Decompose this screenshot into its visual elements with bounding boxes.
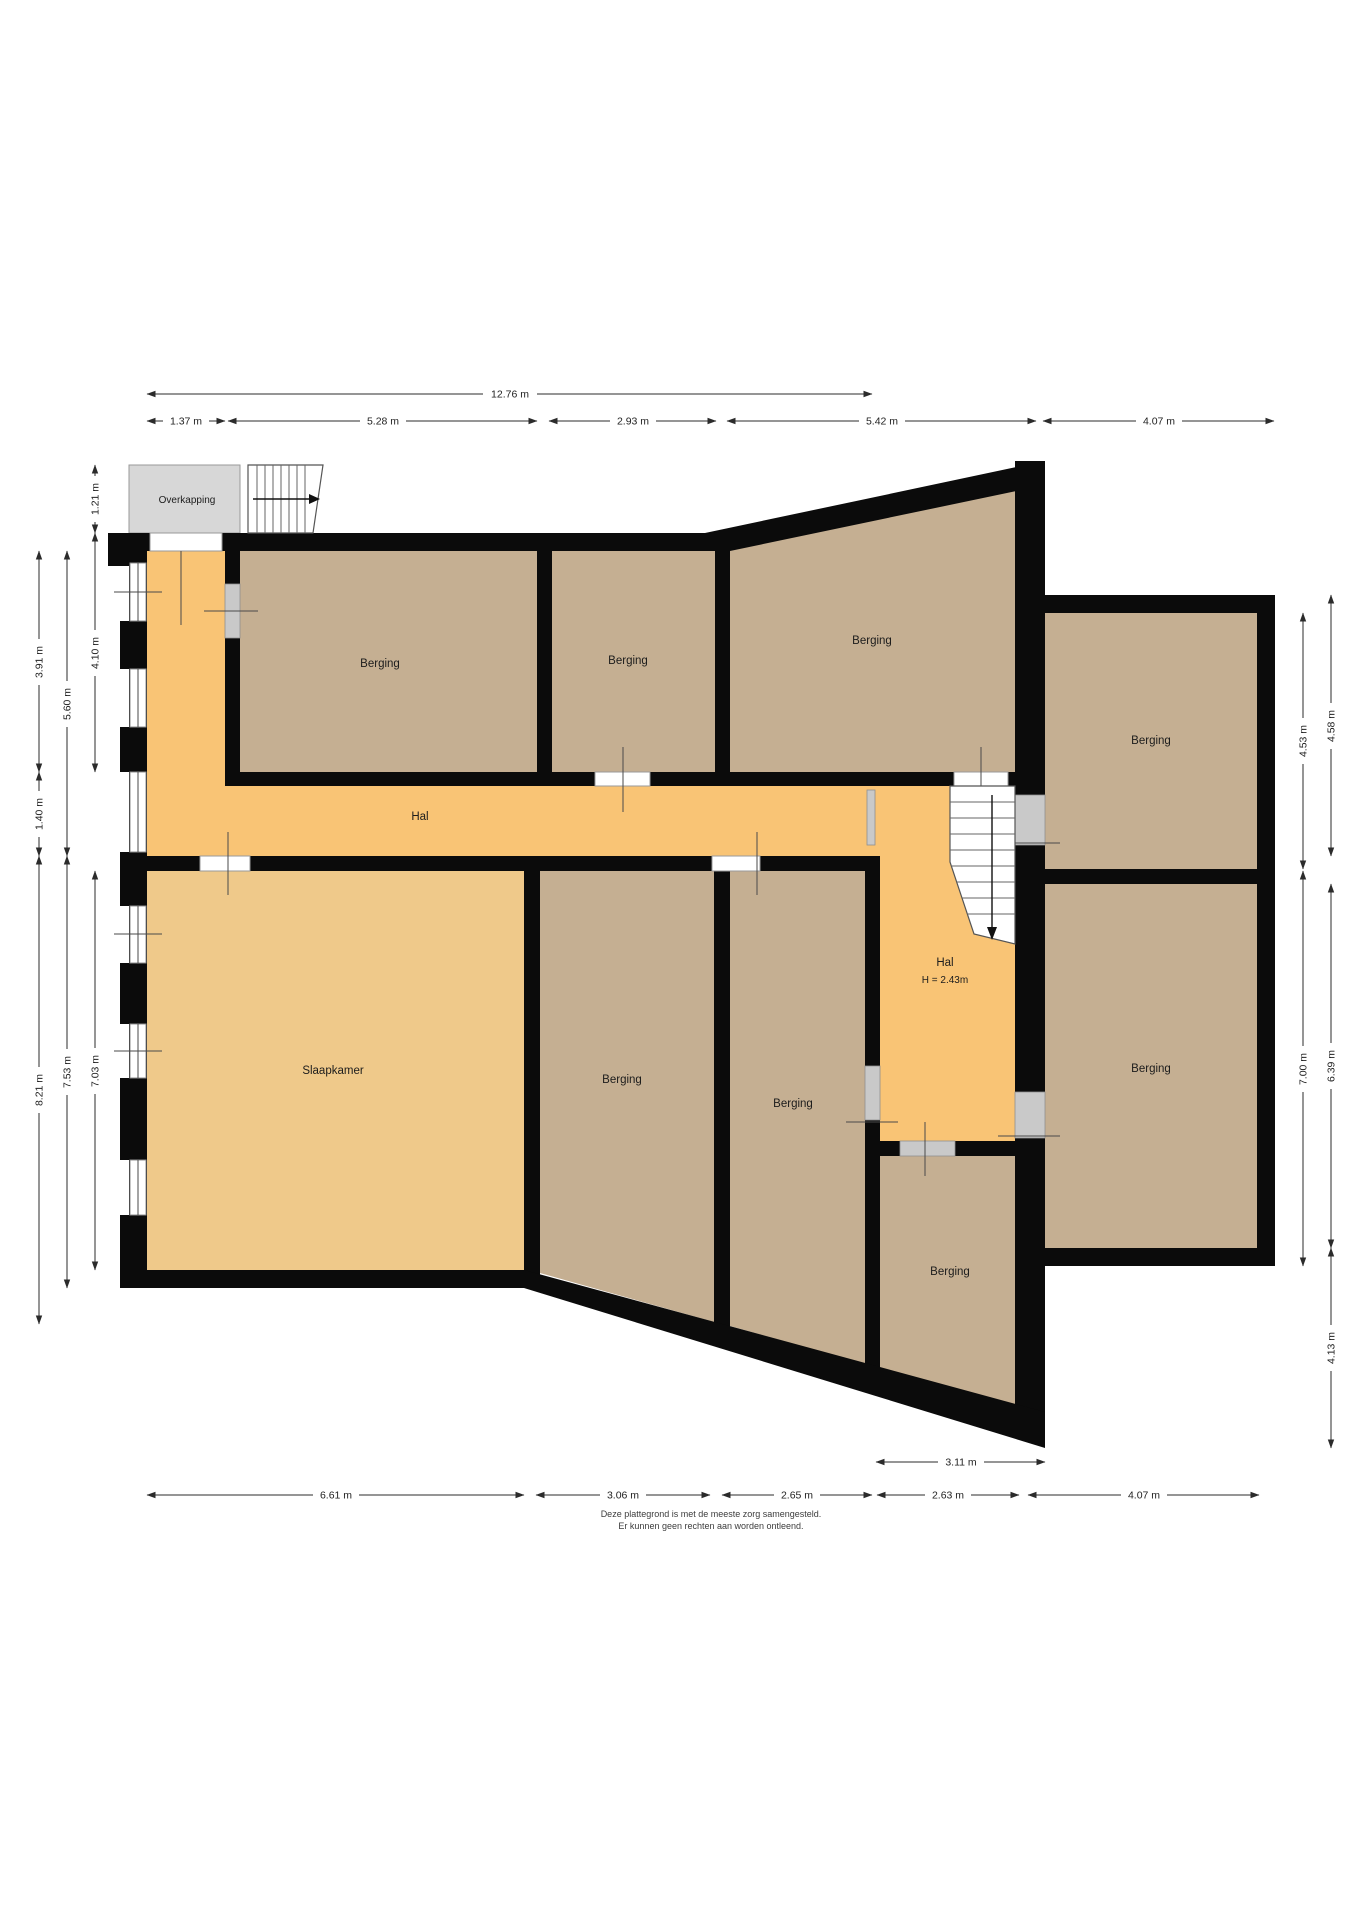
dim-top-total: 12.76 m <box>491 389 529 401</box>
label-berging-top-right: Berging <box>852 635 892 647</box>
dim-top-2: 5.28 m <box>367 416 399 428</box>
label-slaapkamer: Slaapkamer <box>302 1065 364 1077</box>
label-hal-main: Hal <box>411 811 428 823</box>
disclaimer-line1: Deze plattegrond is met de meeste zorg s… <box>601 1509 822 1519</box>
dim-left-inner-2: 4.10 m <box>90 637 102 669</box>
dim-bottom-1: 6.61 m <box>320 1490 352 1502</box>
door-leaf <box>867 790 875 845</box>
dimensions-bottom: 3.11 m 6.61 m 3.06 m 2.65 m 2.63 m 4.07 … <box>147 1456 1259 1502</box>
floorplan-drawing: Overkapping Hal Berging Berging Berging … <box>0 0 1358 1920</box>
floorplan-page: Overkapping Hal Berging Berging Berging … <box>0 0 1358 1920</box>
dim-left-inner-3: 7.03 m <box>90 1055 102 1087</box>
label-berging-bottom-right: Berging <box>930 1266 970 1278</box>
dim-left-mid-1: 5.60 m <box>62 688 74 720</box>
dimensions-top: 12.76 m 1.37 m 5.28 m 2.93 m 5.42 m 4.07… <box>147 388 1274 428</box>
dim-left-mid-2: 7.53 m <box>62 1056 74 1088</box>
dim-left-outer-2: 1.40 m <box>34 798 46 830</box>
dim-left-outer-3: 8.21 m <box>34 1074 46 1106</box>
dim-bottom-2: 3.06 m <box>607 1490 639 1502</box>
door-opening <box>200 856 250 871</box>
label-overkapping: Overkapping <box>159 495 216 506</box>
label-hal-right-height: H = 2.43m <box>922 975 968 986</box>
dim-left-inner-1: 1.21 m <box>90 483 102 515</box>
dim-right-inner-1: 4.53 m <box>1298 725 1310 757</box>
label-berging-top-mid: Berging <box>608 655 648 667</box>
dim-bottom-inner: 3.11 m <box>945 1457 977 1469</box>
entrance-door <box>150 533 222 551</box>
label-berging-bottom-mid: Berging <box>773 1098 813 1110</box>
dim-top-5: 4.07 m <box>1143 416 1175 428</box>
door <box>900 1141 955 1156</box>
dimensions-left: 1.21 m 4.10 m 7.03 m 5.60 m 7.53 m 3.91 … <box>33 465 102 1324</box>
room-berging-bottom-mid <box>730 871 865 1364</box>
dimensions-right: 4.53 m 7.00 m 4.58 m 6.39 m 4.13 m <box>1297 595 1338 1448</box>
dim-bottom-3: 2.65 m <box>781 1490 813 1502</box>
disclaimer: Deze plattegrond is met de meeste zorg s… <box>601 1509 822 1531</box>
dim-right-outer-1: 4.58 m <box>1326 710 1338 742</box>
door <box>1015 795 1045 845</box>
dim-bottom-5: 4.07 m <box>1128 1490 1160 1502</box>
disclaimer-line2: Er kunnen geen rechten aan worden ontlee… <box>618 1521 803 1531</box>
label-berging-right-lower: Berging <box>1131 1063 1171 1075</box>
door-opening <box>712 856 760 871</box>
label-berging-top-left: Berging <box>360 658 400 670</box>
dim-top-4: 5.42 m <box>866 416 898 428</box>
label-berging-right-upper: Berging <box>1131 735 1171 747</box>
staircase-top-left <box>248 465 323 533</box>
dim-top-3: 2.93 m <box>617 416 649 428</box>
door <box>865 1066 880 1120</box>
label-berging-bottom-left: Berging <box>602 1074 642 1086</box>
dim-left-outer-1: 3.91 m <box>34 646 46 678</box>
dim-right-inner-2: 7.00 m <box>1298 1053 1310 1085</box>
dim-right-outer-3: 4.13 m <box>1326 1332 1338 1364</box>
dim-bottom-4: 2.63 m <box>932 1490 964 1502</box>
room-berging-bottom-right <box>880 1156 1015 1406</box>
door <box>1015 1092 1045 1138</box>
dim-top-1: 1.37 m <box>170 416 202 428</box>
dim-right-outer-2: 6.39 m <box>1326 1050 1338 1082</box>
room-berging-bottom-left <box>540 871 714 1322</box>
label-hal-right: Hal <box>936 957 953 969</box>
